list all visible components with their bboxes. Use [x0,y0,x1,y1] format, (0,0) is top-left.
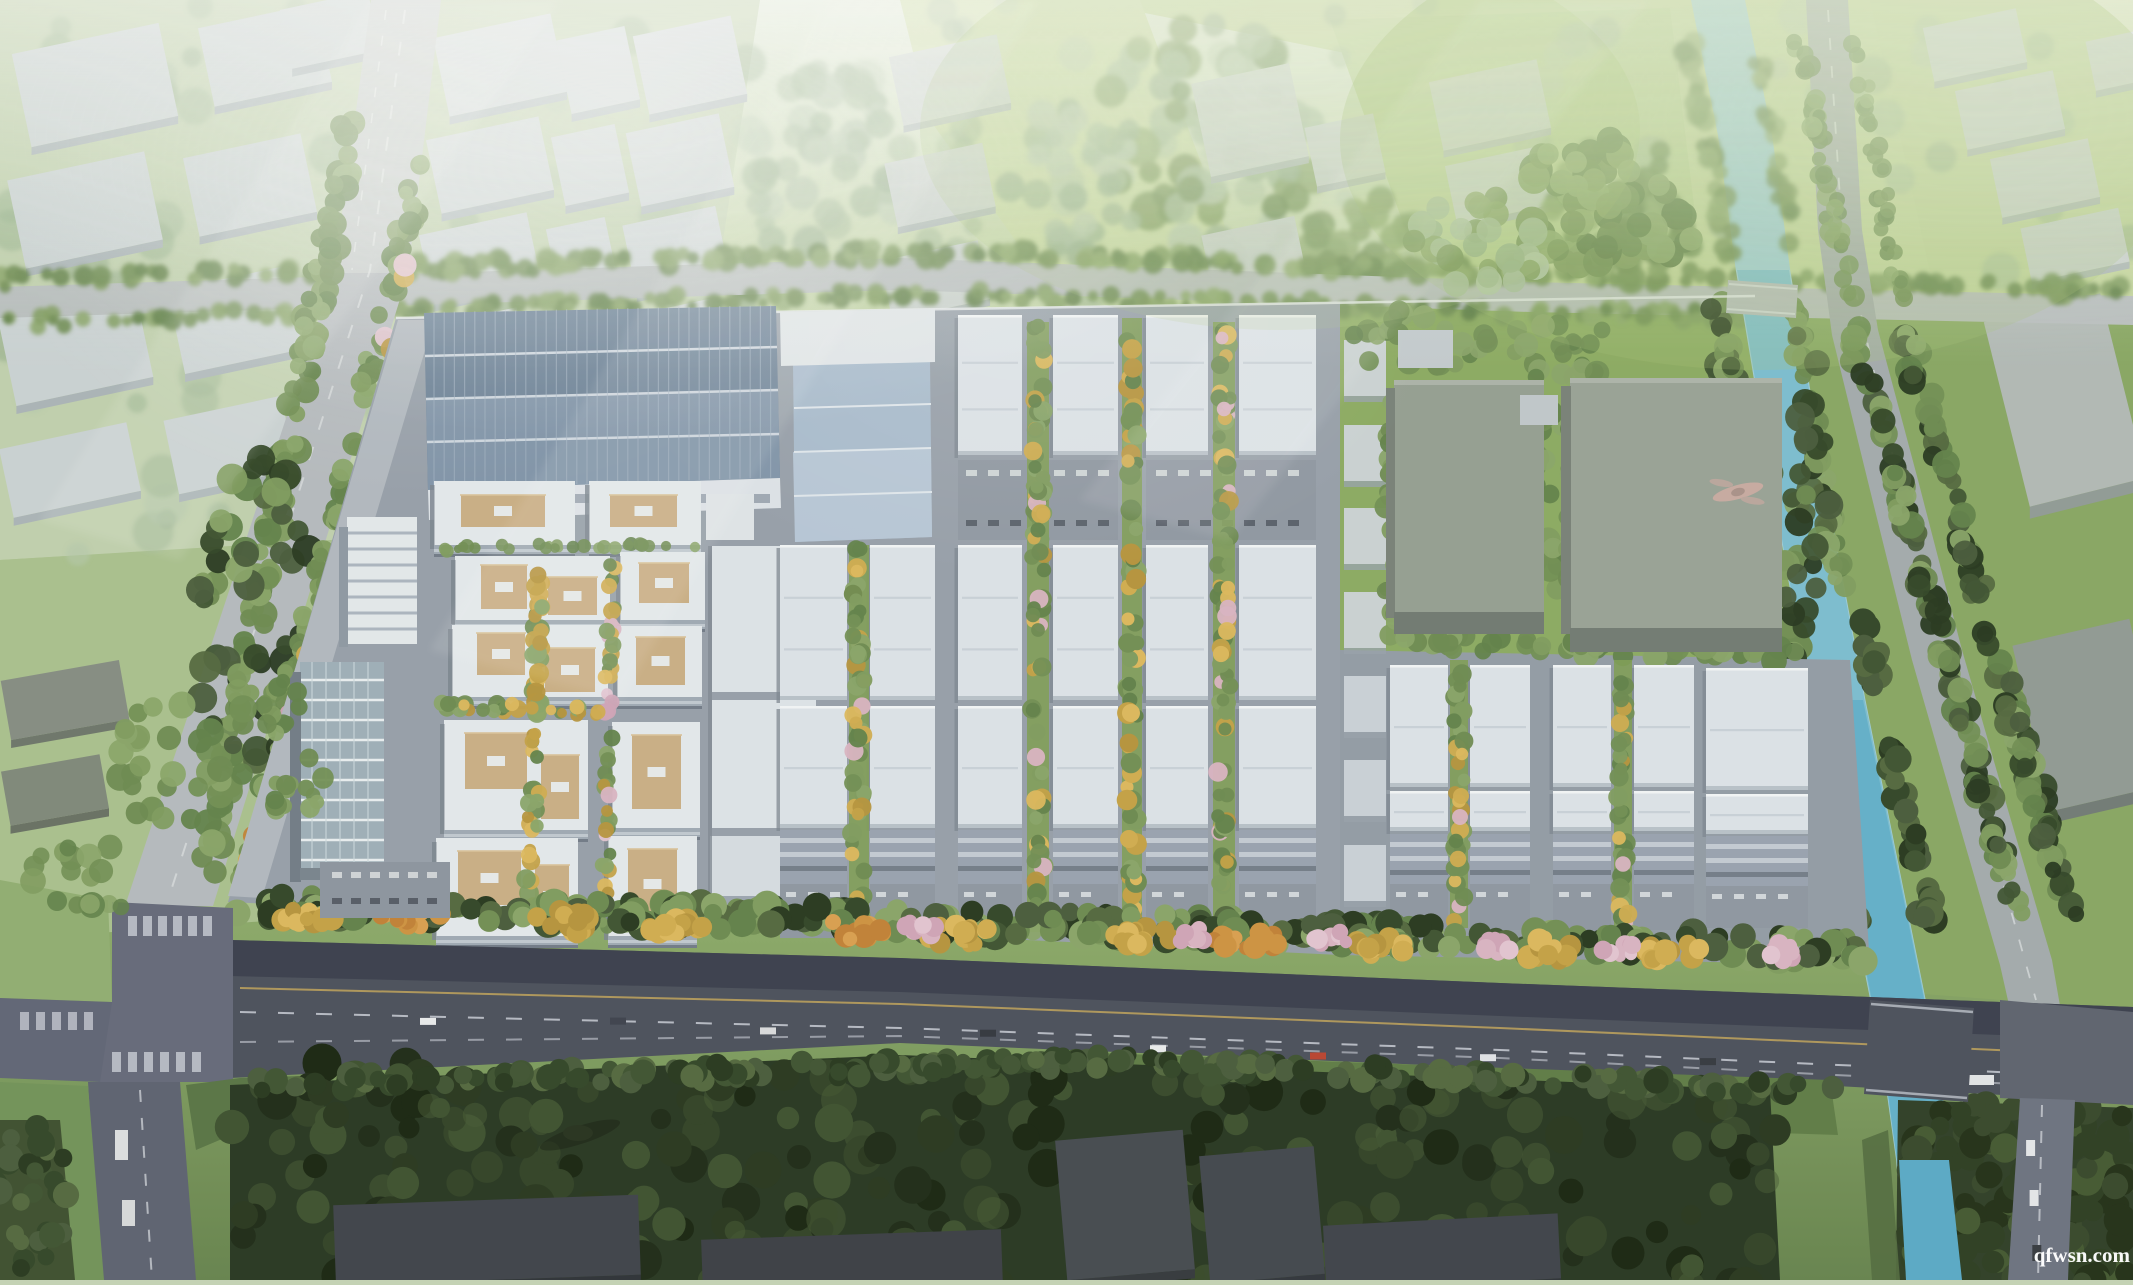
svg-text:qfwsn.com: qfwsn.com [2034,1243,2131,1267]
